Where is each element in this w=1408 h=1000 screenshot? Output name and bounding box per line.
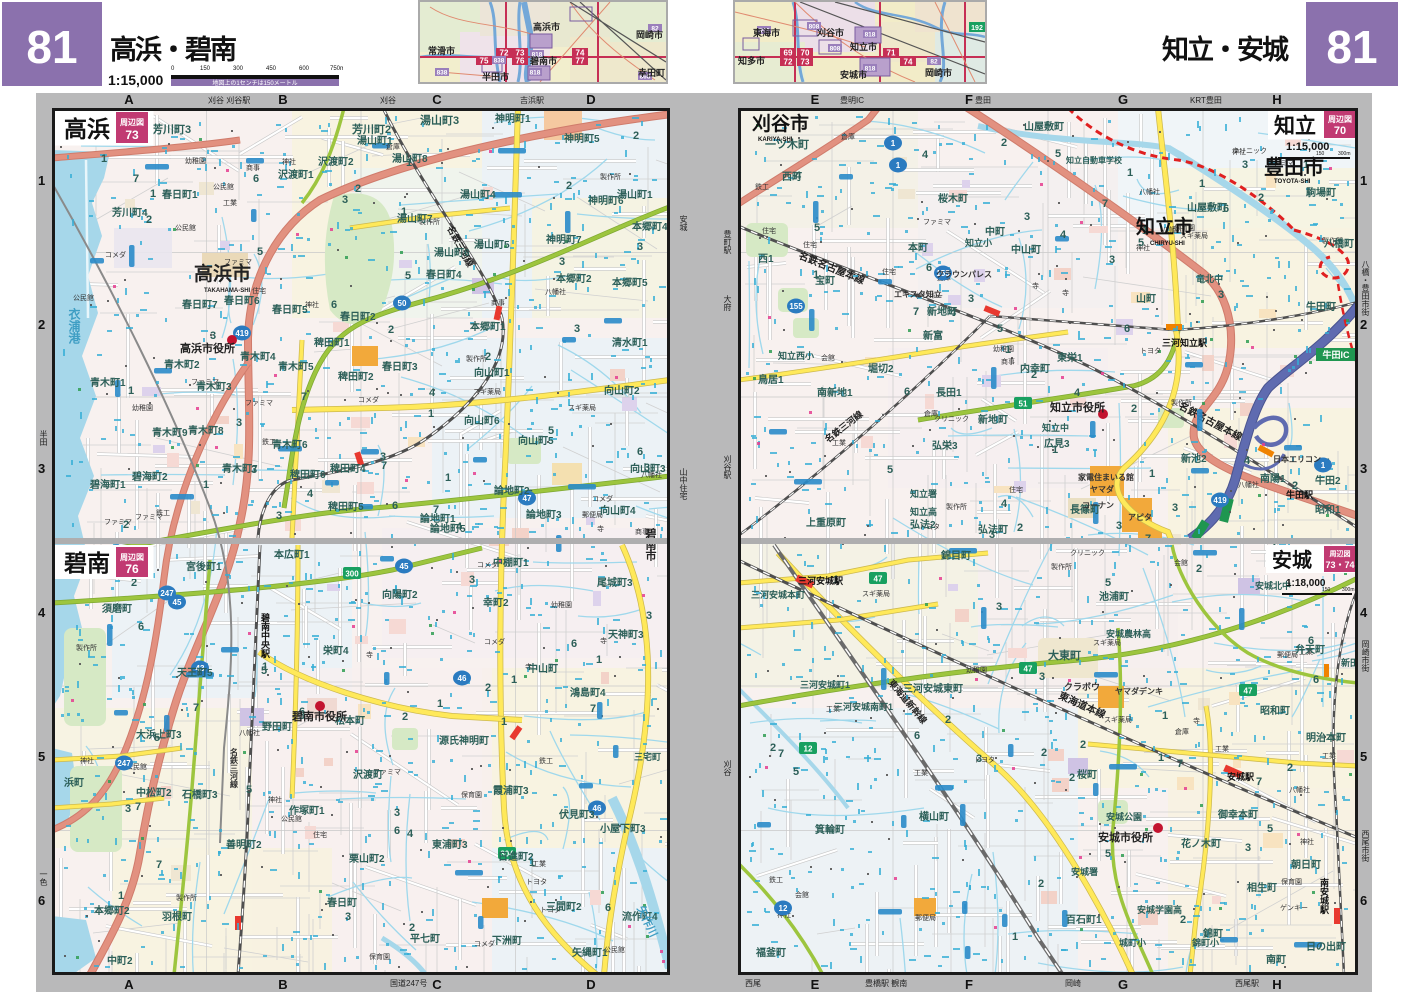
svg-text:5: 5 [997,323,1003,335]
svg-text:2: 2 [1041,747,1047,759]
svg-text:周辺図: 周辺図 [1330,549,1351,558]
svg-text:沢渡町1: 沢渡町1 [278,168,314,181]
svg-text:新富: 新富 [923,329,943,342]
svg-text:4: 4 [307,488,314,500]
svg-text:神明町7: 神明町7 [546,233,582,246]
svg-text:半田市: 半田市 [482,71,509,82]
svg-text:ヤマダ: ヤマダ [1090,484,1114,494]
svg-text:1: 1 [1149,468,1155,480]
svg-text:818: 818 [865,32,876,39]
svg-text:沢渡町: 沢渡町 [353,768,383,781]
svg-text:1: 1 [428,408,434,420]
svg-text:弁天町: 弁天町 [1295,643,1325,656]
svg-text:ファミマ: ファミマ [245,399,273,407]
svg-text:衣浦港: 衣浦港 [67,307,81,345]
svg-text:昭和町: 昭和町 [1260,704,1290,717]
svg-text:花ノ木町: 花ノ木町 [1181,837,1221,850]
svg-text:3: 3 [559,256,565,268]
svg-text:竜北中: 竜北中 [1196,273,1223,284]
svg-text:5: 5 [1138,237,1144,249]
svg-text:73: 73 [125,128,139,142]
svg-text:5: 5 [814,222,820,234]
svg-text:百石町1: 百石町1 [1066,914,1102,926]
svg-text:72: 72 [784,58,793,67]
svg-text:中町: 中町 [985,225,1005,238]
svg-text:クラウンパレス: クラウンパレス [936,269,992,279]
svg-text:KARIYA-SHI: KARIYA-SHI [758,137,793,143]
svg-text:4: 4 [922,149,929,161]
svg-text:論地町5: 論地町5 [430,522,466,535]
svg-text:エキスタ知立: エキスタ知立 [894,289,942,299]
svg-text:新池2: 新池2 [1181,452,1207,465]
svg-text:1: 1 [1321,461,1326,470]
svg-text:838: 838 [494,58,505,65]
svg-text:源氏神明町: 源氏神明町 [439,734,489,747]
svg-text:高浜: 高浜 [64,116,110,142]
svg-text:横山町: 横山町 [919,810,949,823]
svg-text:箕輪町: 箕輪町 [814,823,845,836]
svg-text:向山町5: 向山町5 [518,434,554,447]
svg-text:中山町: 中山町 [1011,243,1041,256]
svg-text:碧南市: 碧南市 [529,55,557,66]
svg-text:本郷町5: 本郷町5 [612,276,648,289]
svg-text:6: 6 [138,621,144,633]
svg-text:西1: 西1 [758,253,774,265]
svg-text:大東町: 大東町 [1048,648,1081,662]
svg-text:湯山町4: 湯山町4 [460,188,496,201]
svg-text:東栄1: 東栄1 [1057,351,1083,364]
svg-text:住宅: 住宅 [1009,485,1023,494]
svg-text:名鉄三河線: 名鉄三河線 [229,747,239,789]
svg-text:日進町2: 日進町2 [498,850,534,863]
svg-text:栗山町2: 栗山町2 [349,852,385,865]
svg-text:1: 1 [1005,344,1011,356]
svg-text:3: 3 [394,807,400,819]
svg-text:6: 6 [394,825,400,837]
svg-text:山屋敷町: 山屋敷町 [1187,201,1227,214]
svg-text:知立西小: 知立西小 [777,350,814,361]
svg-text:牛田駅: 牛田駅 [1286,489,1314,500]
svg-text:家電住まいる館: 家電住まいる館 [1078,472,1134,482]
svg-text:5: 5 [1055,148,1061,160]
svg-text:東浦町3: 東浦町3 [432,838,468,851]
svg-text:南安城駅: 南安城駅 [1319,877,1330,915]
svg-text:寺: 寺 [1062,289,1069,297]
svg-text:トヨタ: トヨタ [526,877,547,886]
svg-text:相生町: 相生町 [1247,881,1277,894]
svg-text:1: 1 [896,161,901,170]
svg-text:碧海町2: 碧海町2 [131,470,168,483]
svg-text:三河安城本町: 三河安城本町 [751,589,805,600]
svg-text:7: 7 [913,306,919,318]
svg-text:八幡社: 八幡社 [1139,187,1160,196]
svg-text:三宅町: 三宅町 [634,751,661,762]
svg-text:錦目町: 錦目町 [940,549,971,562]
svg-text:明治本町: 明治本町 [1306,731,1346,744]
svg-text:2: 2 [409,922,415,934]
svg-text:御幸本町: 御幸本町 [1217,808,1258,821]
svg-text:鴻島町4: 鴻島町4 [570,686,606,699]
svg-text:TAKAHAMA-SHI: TAKAHAMA-SHI [204,288,251,294]
svg-text:沢渡町2: 沢渡町2 [318,155,354,168]
svg-text:善明町2: 善明町2 [226,838,262,851]
svg-text:1: 1 [101,153,107,165]
svg-text:日の出町: 日の出町 [1306,940,1346,953]
svg-text:神明町6: 神明町6 [588,194,624,207]
svg-text:3: 3 [380,451,386,463]
svg-text:1: 1 [501,716,507,728]
svg-text:湯山町7: 湯山町7 [397,212,433,225]
svg-text:弘法2: 弘法2 [910,518,936,531]
svg-text:宝町: 宝町 [815,274,835,287]
svg-text:3: 3 [469,574,475,586]
svg-text:CHIRYU-SHI: CHIRYU-SHI [1150,241,1185,247]
svg-text:6: 6 [926,262,932,274]
svg-text:4: 4 [407,828,414,840]
svg-text:7: 7 [590,703,596,715]
svg-text:2: 2 [566,180,572,192]
svg-text:浜町: 浜町 [64,776,84,789]
svg-text:会館: 会館 [1174,558,1188,567]
svg-text:2: 2 [1196,563,1202,575]
svg-text:春日町6: 春日町6 [224,294,260,307]
svg-text:工業: 工業 [1322,751,1336,760]
svg-text:湯山町6: 湯山町6 [434,246,470,259]
svg-text:神社: 神社 [282,157,296,166]
svg-text:1: 1 [128,385,134,397]
svg-text:5: 5 [1105,848,1111,860]
svg-text:高浜市役所: 高浜市役所 [180,341,235,355]
svg-text:7: 7 [156,859,162,871]
svg-text:八橋町: 八橋町 [1323,237,1354,250]
svg-text:1: 1 [203,479,209,491]
svg-text:知立市役所: 知立市役所 [1049,400,1105,414]
svg-text:製作所: 製作所 [1051,562,1072,571]
svg-text:平七町: 平七町 [410,932,440,945]
svg-text:商事: 商事 [491,298,505,307]
svg-text:スギ薬局: スギ薬局 [1093,638,1121,647]
svg-text:3: 3 [210,330,216,342]
svg-text:1: 1 [1199,178,1205,190]
svg-text:コメダ: コメダ [105,250,126,259]
svg-text:2: 2 [485,351,491,363]
svg-text:八幡社: 八幡社 [545,287,566,296]
svg-text:湯山町5: 湯山町5 [474,238,510,251]
svg-text:錦町小: 錦町小 [1191,937,1219,948]
svg-text:1: 1 [262,661,268,673]
svg-text:寺: 寺 [1193,717,1200,725]
svg-text:2: 2 [1017,522,1023,534]
svg-text:51: 51 [1019,400,1028,409]
svg-text:3: 3 [1109,254,1115,266]
svg-text:知立市: 知立市 [849,41,877,52]
svg-text:トヨタ: トヨタ [1140,346,1161,355]
svg-text:伏見町3: 伏見町3 [558,808,595,821]
svg-text:神社: 神社 [1300,837,1314,846]
svg-text:76: 76 [125,562,139,576]
svg-text:2: 2 [1038,878,1044,890]
svg-text:45: 45 [400,562,409,571]
svg-text:青木町9: 青木町9 [152,426,188,439]
svg-text:青木町1: 青木町1 [90,376,126,389]
svg-text:神明町5: 神明町5 [564,132,600,145]
svg-text:桜木町: 桜木町 [938,192,968,205]
svg-text:天王町5: 天王町5 [177,667,213,679]
svg-text:82: 82 [930,59,938,66]
svg-text:内幸町: 内幸町 [1020,362,1050,375]
svg-text:本郷町2: 本郷町2 [556,272,592,285]
svg-text:本郷町1: 本郷町1 [470,320,506,333]
svg-text:倉庫: 倉庫 [841,132,855,141]
svg-text:製作所: 製作所 [946,502,967,511]
svg-text:5: 5 [405,270,411,282]
svg-text:牛田2: 牛田2 [1315,474,1341,487]
svg-text:知立市: 知立市 [1136,215,1193,238]
svg-text:70: 70 [801,49,810,58]
svg-text:保育園: 保育園 [369,952,390,961]
svg-text:4: 4 [1244,455,1251,467]
svg-text:向陽町2: 向陽町2 [382,588,418,601]
svg-text:2: 2 [1180,914,1186,926]
svg-text:向山町4: 向山町4 [600,504,636,517]
svg-text:春日町7: 春日町7 [182,298,218,311]
svg-text:石橋町3: 石橋町3 [181,788,218,801]
svg-text:安城署: 安城署 [1071,866,1098,877]
svg-text:76: 76 [516,57,525,66]
svg-text:74: 74 [904,58,913,67]
svg-text:1: 1 [437,698,443,710]
svg-text:2: 2 [1001,137,1007,149]
svg-text:公民館: 公民館 [175,223,196,232]
svg-text:鉄工: 鉄工 [539,756,553,765]
svg-text:南新地1: 南新地1 [817,386,853,399]
svg-text:アピタ: アピタ [1128,512,1152,522]
svg-text:2: 2 [1287,762,1293,774]
svg-text:春日町4: 春日町4 [426,268,462,281]
svg-text:小屋下町3: 小屋下町3 [599,822,646,835]
svg-text:新地町: 新地町 [927,305,957,318]
svg-text:幸町2: 幸町2 [483,596,509,609]
svg-text:製作所: 製作所 [76,643,97,652]
svg-text:1: 1 [596,654,602,666]
svg-text:スギ薬局: スギ薬局 [862,589,890,598]
svg-text:12: 12 [804,745,813,754]
svg-text:45: 45 [173,598,182,607]
svg-text:倉庫: 倉庫 [1175,727,1189,736]
svg-text:尾城町3: 尾城町3 [597,576,633,589]
svg-text:2: 2 [770,742,776,754]
svg-text:新地町: 新地町 [978,413,1008,426]
svg-text:向山町3: 向山町3 [630,462,666,475]
svg-text:鉄工: 鉄工 [156,508,170,517]
svg-text:青木町8: 青木町8 [188,424,224,437]
svg-text:3: 3 [1039,671,1045,683]
svg-text:住宅: 住宅 [252,286,266,295]
svg-text:工業: 工業 [914,768,928,777]
svg-text:寺: 寺 [366,651,373,659]
svg-text:会館: 会館 [795,890,809,899]
svg-text:知立小: 知立小 [964,237,992,248]
svg-text:大浜上町3: 大浜上町3 [136,728,182,741]
svg-text:300m: 300m [1342,587,1355,593]
svg-text:住宅: 住宅 [803,240,817,249]
svg-text:霞浦町3: 霞浦町3 [493,784,529,797]
svg-text:47: 47 [874,575,883,584]
svg-text:桜町: 桜町 [1077,768,1097,781]
svg-text:弘栄3: 弘栄3 [932,439,958,452]
svg-text:山屋敷町: 山屋敷町 [1024,120,1064,133]
svg-text:2: 2 [388,324,394,336]
svg-text:福釜町: 福釜町 [755,946,786,959]
svg-text:稗田町4: 稗田町4 [330,462,366,475]
svg-text:高浜市: 高浜市 [194,262,251,285]
svg-text:300m: 300m [1338,151,1351,157]
svg-text:向山町1: 向山町1 [474,366,510,379]
svg-text:コメダ: コメダ [484,637,505,646]
svg-text:芳川町3: 芳川町3 [152,122,191,136]
svg-text:4: 4 [1074,387,1081,399]
svg-text:栄町4: 栄町4 [322,644,349,657]
svg-text:西町: 西町 [782,171,802,183]
svg-text:3: 3 [345,911,351,923]
svg-text:春日町1: 春日町1 [162,188,198,201]
svg-text:八幡社: 八幡社 [239,728,260,737]
svg-text:4: 4 [1060,229,1067,241]
svg-text:弘法町: 弘法町 [978,523,1008,536]
svg-text:中松町2: 中松町2 [136,786,172,799]
svg-text:300: 300 [233,66,244,72]
svg-text:岡崎市: 岡崎市 [925,67,952,78]
svg-text:419: 419 [235,329,249,338]
svg-text:本広町1: 本広町1 [274,548,310,561]
svg-text:清水町1: 清水町1 [612,336,648,349]
svg-text:クラボウ: クラボウ [1064,681,1100,692]
svg-text:青木町7: 青木町7 [222,462,258,475]
svg-text:日本エリコン: 日本エリコン [1273,454,1321,464]
svg-text:1: 1 [1158,752,1164,764]
svg-text:野田町: 野田町 [262,721,292,733]
svg-text:向山町2: 向山町2 [604,384,640,397]
svg-text:安城市役所: 安城市役所 [1098,830,1153,844]
svg-text:3: 3 [646,610,652,622]
svg-text:碧南市役所: 碧南市役所 [291,709,347,723]
svg-text:工業: 工業 [223,198,237,207]
svg-text:3: 3 [1024,211,1030,223]
svg-text:600: 600 [299,66,310,72]
svg-text:2: 2 [1069,772,1075,784]
svg-text:73: 73 [801,58,810,67]
svg-text:論地町3: 論地町3 [526,508,562,521]
svg-text:芳川町2: 芳川町2 [352,122,391,136]
svg-text:南陽1: 南陽1 [1260,472,1286,485]
svg-text:6: 6 [253,173,259,185]
svg-text:コメダ: コメダ [592,494,613,503]
svg-text:150: 150 [1316,151,1325,157]
svg-text:コメダ: コメダ [358,395,379,404]
svg-text:6: 6 [904,386,910,398]
svg-text:安城学園高: 安城学園高 [1137,904,1182,915]
svg-text:3: 3 [1116,520,1122,532]
svg-text:4: 4 [429,387,436,399]
svg-text:湯山町8: 湯山町8 [392,152,428,165]
svg-text:75: 75 [480,57,489,66]
svg-text:3: 3 [637,241,643,253]
svg-text:3: 3 [976,753,982,765]
svg-text:羽根町: 羽根町 [162,910,192,923]
svg-text:広見3: 広見3 [1044,437,1070,450]
svg-text:6: 6 [605,902,611,914]
svg-text:神明町1: 神明町1 [495,112,531,125]
svg-text:幼稚園: 幼稚園 [966,665,987,674]
svg-text:三間町2: 三間町2 [546,901,582,913]
svg-text:1: 1 [1127,167,1133,179]
svg-text:クリニック: クリニック [1070,549,1105,557]
svg-text:製作所: 製作所 [466,354,487,363]
svg-text:5: 5 [793,766,799,778]
svg-text:5: 5 [246,784,252,796]
svg-text:公民館: 公民館 [213,182,234,191]
svg-text:春日町2: 春日町2 [340,310,376,323]
svg-text:青木町5: 青木町5 [278,360,314,373]
svg-text:八幡社: 八幡社 [1289,785,1310,794]
svg-text:155: 155 [789,302,803,311]
svg-text:73・74: 73・74 [1325,560,1354,570]
svg-text:2: 2 [402,711,408,723]
svg-text:808: 808 [830,46,841,53]
svg-text:幼稚園: 幼稚園 [132,403,153,412]
svg-text:スギ薬局: スギ薬局 [568,403,596,412]
svg-text:昭和1: 昭和1 [1315,503,1341,516]
svg-text:駒場町: 駒場町 [1305,186,1336,199]
svg-text:幼稚園: 幼稚園 [185,156,206,165]
svg-text:山町: 山町 [1136,292,1156,305]
svg-text:6: 6 [914,730,920,742]
svg-text:公民館: 公民館 [73,293,94,302]
svg-text:稗田町1: 稗田町1 [314,336,350,349]
svg-text:6: 6 [637,446,643,458]
svg-text:クリニック: クリニック [934,415,969,423]
svg-text:会館: 会館 [821,353,835,362]
svg-text:稗田町2: 稗田町2 [338,370,374,383]
svg-text:50: 50 [398,299,407,308]
svg-text:70: 70 [1334,125,1346,137]
svg-text:工業: 工業 [832,438,846,447]
svg-text:春日町5: 春日町5 [272,303,308,316]
svg-text:青木町4: 青木町4 [240,350,276,363]
svg-text:作塚町1: 作塚町1 [289,804,325,817]
svg-text:3: 3 [276,510,282,522]
svg-text:1: 1 [118,890,124,902]
svg-text:安城公園: 安城公園 [1106,811,1142,822]
svg-text:向山町6: 向山町6 [464,414,500,427]
svg-text:5: 5 [257,246,263,258]
svg-text:周辺図: 周辺図 [120,117,144,127]
svg-text:2: 2 [1131,403,1137,415]
svg-text:東海市: 東海市 [753,27,780,38]
svg-text:商事: 商事 [246,163,260,172]
svg-text:7: 7 [133,173,139,185]
svg-text:三河知立駅: 三河知立駅 [1162,337,1208,348]
svg-text:矢縄町1: 矢縄町1 [572,946,608,959]
svg-text:1: 1 [1162,710,1168,722]
svg-text:2: 2 [1080,739,1086,751]
svg-text:3: 3 [574,323,580,335]
svg-text:保育園: 保育園 [1281,877,1302,886]
svg-text:3: 3 [1242,159,1248,171]
svg-text:247: 247 [117,759,131,768]
svg-text:安城: 安城 [1272,548,1312,572]
svg-text:池浦町: 池浦町 [1099,590,1129,603]
